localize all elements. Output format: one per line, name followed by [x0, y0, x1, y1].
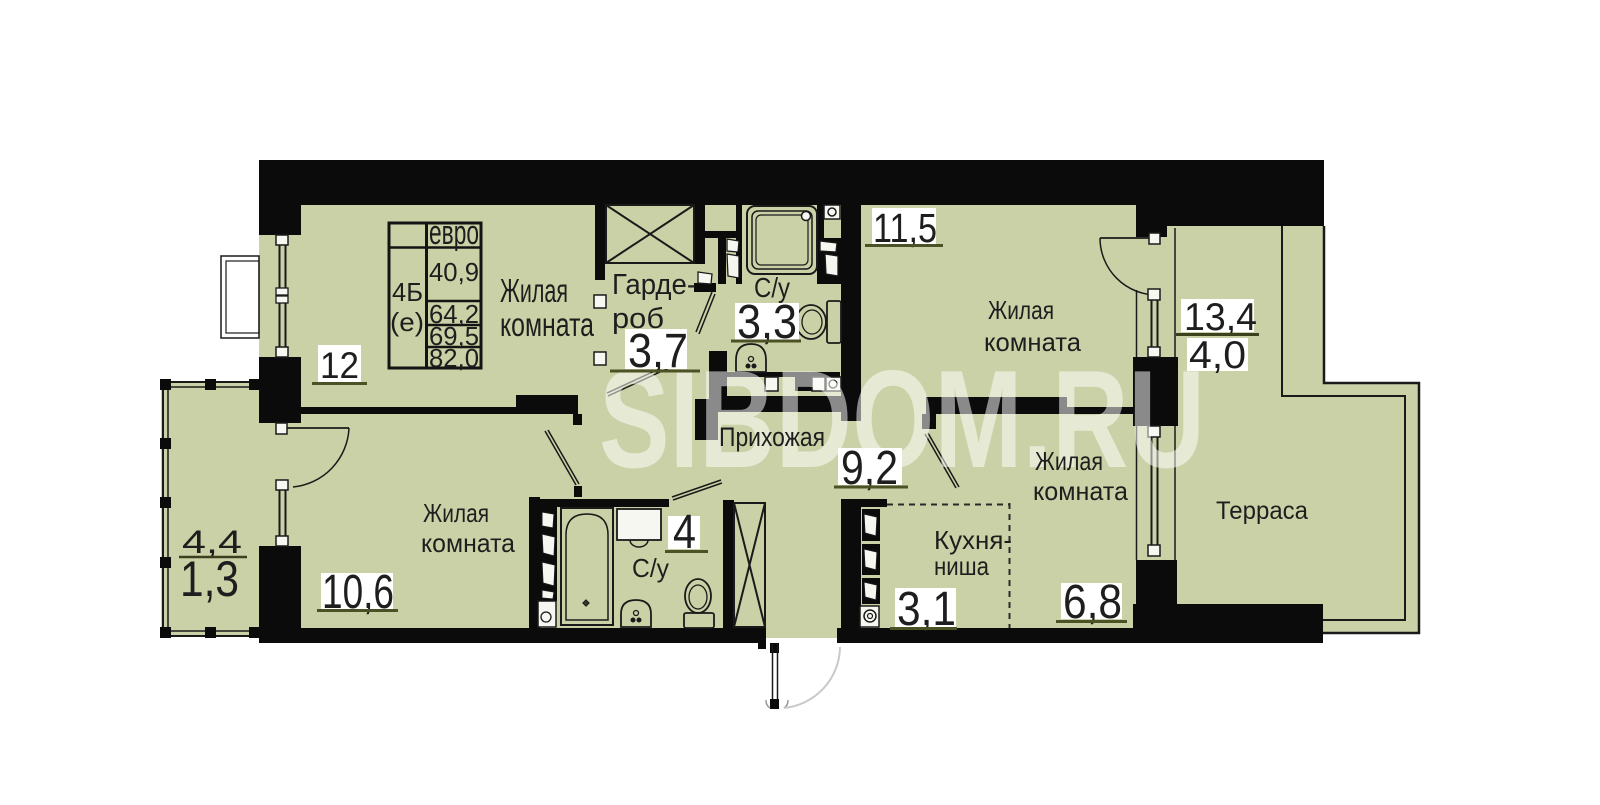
svg-text:комната: комната: [984, 327, 1082, 357]
svg-text:4Б: 4Б: [392, 277, 423, 307]
svg-text:Жилая: Жилая: [500, 272, 568, 309]
svg-text:евро: евро: [429, 214, 479, 252]
svg-text:Гарде-: Гарде-: [612, 269, 696, 301]
svg-text:4,0: 4,0: [1189, 334, 1246, 377]
svg-text:13,4: 13,4: [1184, 296, 1257, 339]
svg-text:82,0: 82,0: [429, 343, 479, 373]
svg-text:Жилая: Жилая: [1035, 446, 1103, 476]
svg-text:комната: комната: [1033, 476, 1129, 506]
svg-text:Терраса: Терраса: [1216, 497, 1308, 525]
svg-text:ниша: ниша: [934, 551, 989, 581]
svg-text:комната: комната: [421, 528, 516, 558]
svg-text:12: 12: [320, 345, 359, 386]
svg-text:1,3: 1,3: [180, 551, 239, 607]
svg-text:Прихожая: Прихожая: [719, 422, 825, 452]
svg-text:40,9: 40,9: [429, 257, 479, 287]
svg-text:комната: комната: [500, 306, 594, 343]
svg-text:С/у: С/у: [632, 553, 669, 583]
svg-text:Жилая: Жилая: [988, 295, 1054, 325]
svg-text:Жилая: Жилая: [423, 498, 489, 528]
svg-text:(е): (е): [390, 307, 424, 337]
